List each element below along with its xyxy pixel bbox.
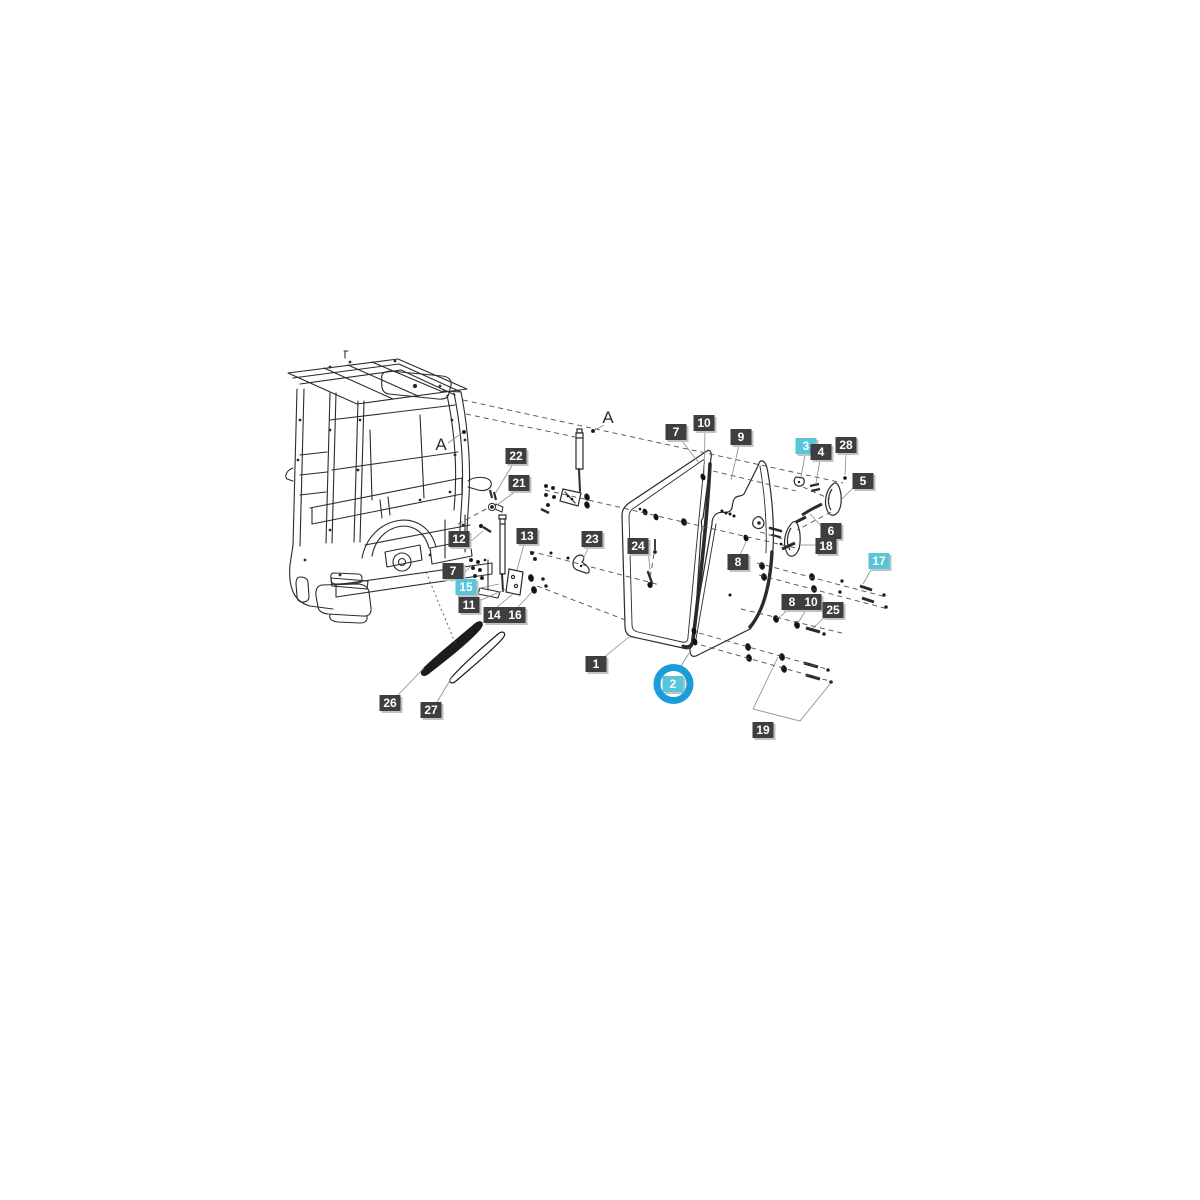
part-label-8[interactable]: 8 bbox=[728, 554, 749, 570]
view-label-A: A bbox=[435, 435, 446, 455]
part-label-27[interactable]: 27 bbox=[421, 702, 442, 718]
diagram-stage: 2221121371511141623241226271971093428561… bbox=[0, 0, 1200, 1200]
part-label-23[interactable]: 23 bbox=[582, 531, 603, 547]
part-label-7[interactable]: 7 bbox=[666, 424, 687, 440]
part-label-12[interactable]: 12 bbox=[449, 531, 470, 547]
view-label-A: A bbox=[602, 408, 613, 428]
part-label-15[interactable]: 15 bbox=[456, 579, 477, 595]
part-label-11[interactable]: 11 bbox=[459, 597, 480, 613]
part-label-24[interactable]: 24 bbox=[628, 538, 649, 554]
part-label-6[interactable]: 6 bbox=[821, 523, 842, 539]
part-label-18[interactable]: 18 bbox=[816, 538, 837, 554]
part-label-17[interactable]: 17 bbox=[869, 553, 890, 569]
part-label-26[interactable]: 26 bbox=[380, 695, 401, 711]
part-label-10[interactable]: 10 bbox=[694, 415, 715, 431]
part-label-8[interactable]: 8 bbox=[782, 594, 803, 610]
part-label-21[interactable]: 21 bbox=[509, 475, 530, 491]
part-label-layer: 2221121371511141623241226271971093428561… bbox=[0, 0, 1200, 1200]
part-label-10[interactable]: 10 bbox=[801, 594, 822, 610]
part-label-16[interactable]: 16 bbox=[505, 607, 526, 623]
part-label-2[interactable]: 2 bbox=[663, 676, 684, 692]
part-label-25[interactable]: 25 bbox=[823, 602, 844, 618]
part-label-5[interactable]: 5 bbox=[853, 473, 874, 489]
part-label-28[interactable]: 28 bbox=[836, 437, 857, 453]
part-label-19[interactable]: 19 bbox=[753, 722, 774, 738]
part-label-4[interactable]: 4 bbox=[811, 444, 832, 460]
part-label-9[interactable]: 9 bbox=[731, 429, 752, 445]
part-label-1[interactable]: 1 bbox=[586, 656, 607, 672]
part-label-7[interactable]: 7 bbox=[443, 563, 464, 579]
part-label-14[interactable]: 14 bbox=[484, 607, 505, 623]
part-label-22[interactable]: 22 bbox=[506, 448, 527, 464]
part-label-13[interactable]: 13 bbox=[517, 528, 538, 544]
